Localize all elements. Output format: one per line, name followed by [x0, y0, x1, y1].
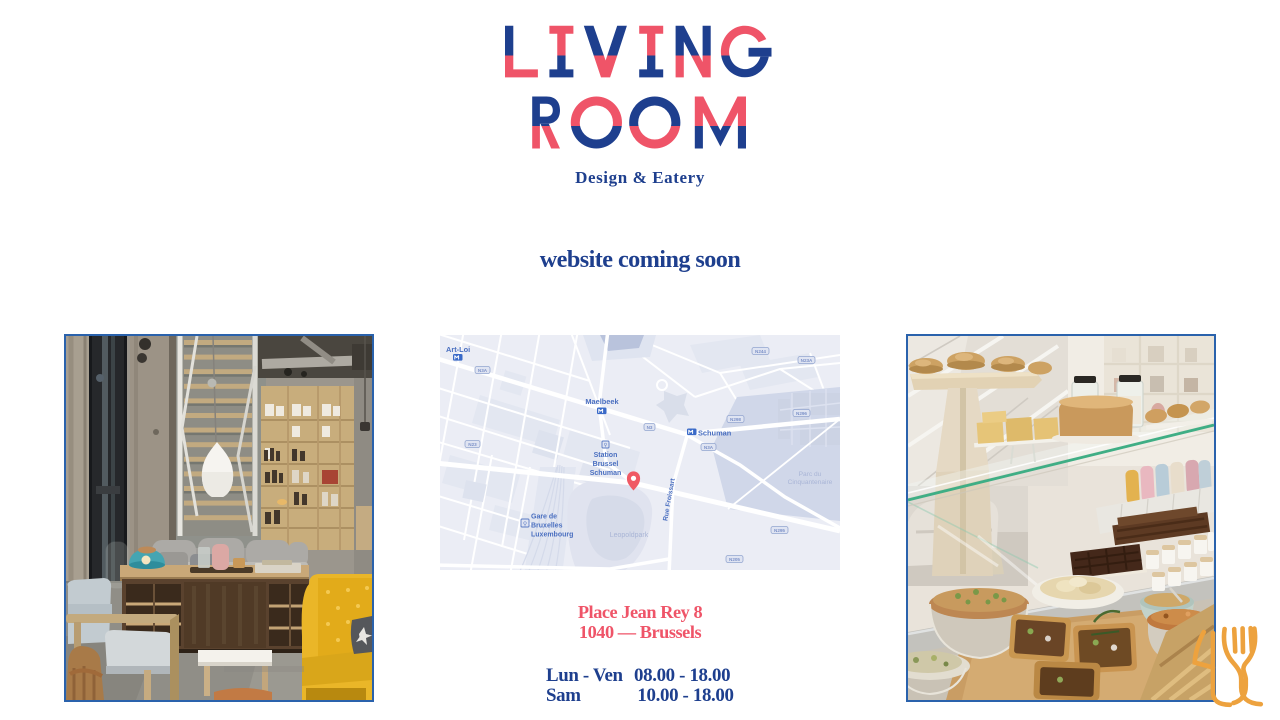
- svg-text:N23: N23: [468, 442, 477, 447]
- svg-text:N205: N205: [729, 557, 740, 562]
- svg-text:Cinquantenaire: Cinquantenaire: [788, 479, 833, 486]
- svg-text:N3A: N3A: [478, 368, 488, 373]
- svg-text:N23A: N23A: [801, 358, 813, 363]
- svg-text:Bruxelles: Bruxelles: [531, 523, 563, 530]
- svg-text:Gare de: Gare de: [531, 514, 557, 521]
- svg-text:Parc du: Parc du: [799, 471, 822, 478]
- svg-text:Maelbeek: Maelbeek: [585, 397, 619, 406]
- svg-text:Luxembourg: Luxembourg: [531, 532, 573, 539]
- svg-text:Schuman: Schuman: [590, 470, 622, 477]
- svg-text:Station: Station: [594, 452, 618, 459]
- svg-text:Schuman: Schuman: [698, 429, 732, 438]
- svg-text:Leopoldpark: Leopoldpark: [610, 532, 649, 539]
- svg-text:N3: N3: [647, 425, 653, 430]
- svg-text:N244: N244: [755, 349, 766, 354]
- svg-text:N298: N298: [730, 417, 741, 422]
- svg-text:N296: N296: [796, 411, 807, 416]
- svg-text:⚲: ⚲: [523, 521, 527, 527]
- svg-text:Art-Loi: Art-Loi: [446, 345, 470, 354]
- svg-text:Brussel: Brussel: [593, 461, 619, 468]
- svg-text:N3A: N3A: [704, 445, 714, 450]
- svg-text:⚲: ⚲: [604, 443, 608, 449]
- svg-text:N295: N295: [774, 528, 785, 533]
